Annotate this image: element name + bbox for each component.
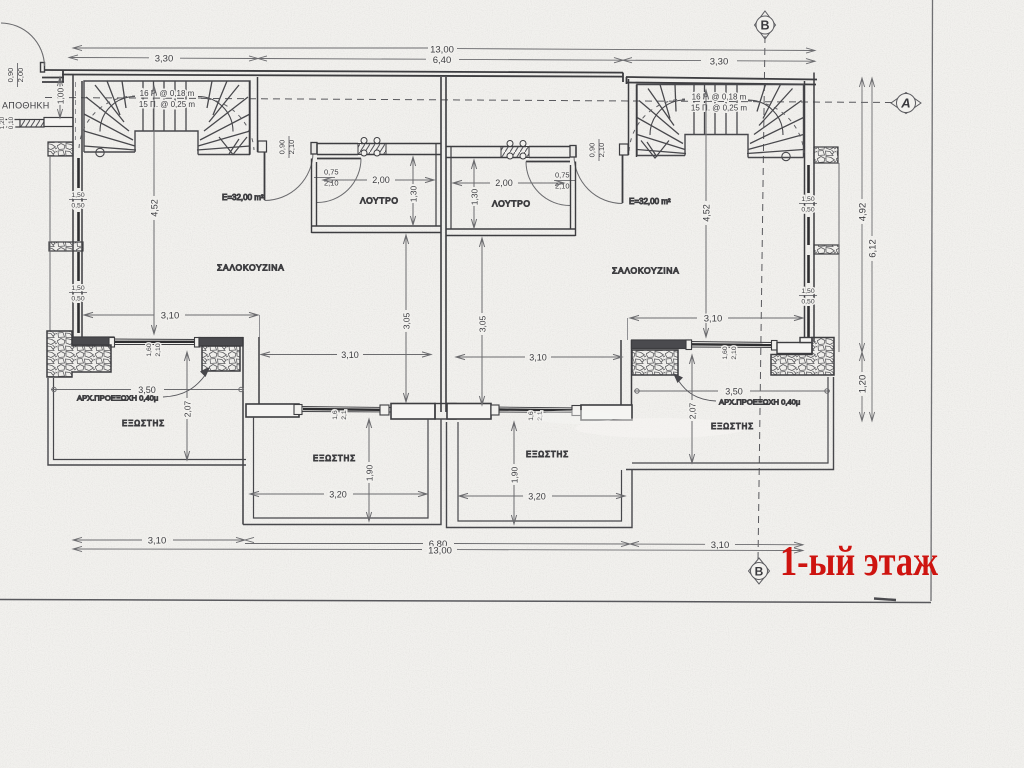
svg-text:ΕΞΩΣΤΗΣ: ΕΞΩΣΤΗΣ — [711, 422, 754, 431]
svg-text:2,10: 2,10 — [287, 140, 296, 155]
svg-text:2,10: 2,10 — [597, 143, 606, 158]
svg-text:1,50: 1,50 — [71, 192, 84, 199]
svg-text:2,10: 2,10 — [155, 343, 162, 356]
svg-text:A: A — [900, 96, 910, 111]
svg-text:ΕΞΩΣΤΗΣ: ΕΞΩΣΤΗΣ — [313, 454, 356, 463]
svg-text:0,90: 0,90 — [6, 68, 15, 83]
svg-text:0,50: 0,50 — [71, 296, 84, 303]
svg-text:1,6: 1,6 — [332, 410, 339, 420]
svg-text:E=32,00 m²: E=32,00 m² — [629, 197, 671, 206]
svg-text:2,00: 2,00 — [495, 178, 513, 188]
svg-text:1,50: 1,50 — [71, 285, 84, 292]
svg-text:1,90: 1,90 — [365, 464, 375, 481]
svg-text:2,07: 2,07 — [183, 400, 193, 417]
svg-text:1,50: 1,50 — [801, 196, 814, 203]
svg-text:1,60: 1,60 — [146, 343, 153, 356]
svg-text:3,10: 3,10 — [148, 536, 167, 547]
svg-text:6,12: 6,12 — [868, 239, 879, 258]
svg-text:0,50: 0,50 — [801, 207, 814, 214]
svg-text:ΑΠΟΘΗΚΗ: ΑΠΟΘΗΚΗ — [2, 101, 50, 111]
svg-text:2,00: 2,00 — [372, 175, 390, 185]
svg-text:1,50: 1,50 — [801, 288, 814, 295]
svg-text:16 Ρ. @ 0,18 m: 16 Ρ. @ 0,18 m — [140, 89, 195, 98]
svg-text:0,90: 0,90 — [278, 140, 287, 155]
svg-text:13,00: 13,00 — [428, 546, 452, 557]
svg-text:6,40: 6,40 — [433, 55, 452, 66]
svg-text:0,90: 0,90 — [588, 143, 597, 158]
svg-text:2,1: 2,1 — [341, 410, 348, 420]
svg-text:ΣΑΛΟΚΟΥΖΙΝΑ: ΣΑΛΟΚΟΥΖΙΝΑ — [612, 266, 680, 276]
svg-text:B: B — [760, 19, 769, 33]
svg-text:4,92: 4,92 — [858, 203, 869, 222]
svg-text:2,10: 2,10 — [731, 346, 738, 359]
svg-text:0,10: 0,10 — [8, 116, 15, 129]
svg-text:ΛΟΥΤΡΟ: ΛΟΥΤΡΟ — [492, 199, 531, 209]
svg-text:3,05: 3,05 — [478, 315, 488, 332]
svg-text:ΣΑΛΟΚΟΥΖΙΝΑ: ΣΑΛΟΚΟΥΖΙΝΑ — [217, 263, 285, 273]
svg-text:ΕΞΩΣΤΗΣ: ΕΞΩΣΤΗΣ — [526, 450, 569, 459]
svg-text:0,50: 0,50 — [71, 203, 84, 210]
svg-text:1,6: 1,6 — [528, 411, 535, 421]
svg-text:3,50: 3,50 — [725, 387, 743, 397]
svg-text:B: B — [755, 565, 764, 579]
svg-text:3,10: 3,10 — [341, 350, 359, 360]
svg-text:1,20: 1,20 — [0, 116, 6, 129]
svg-text:13,00: 13,00 — [430, 45, 454, 56]
svg-text:3,10: 3,10 — [704, 314, 723, 325]
svg-text:1,30: 1,30 — [409, 185, 419, 202]
svg-text:E=32,00 m²: E=32,00 m² — [222, 193, 264, 202]
svg-text:3,30: 3,30 — [155, 54, 174, 65]
svg-text:1,20: 1,20 — [858, 375, 869, 394]
svg-text:16 Ρ. @ 0,18 m: 16 Ρ. @ 0,18 m — [692, 93, 747, 102]
svg-text:3,10: 3,10 — [529, 353, 547, 363]
svg-text:2,07: 2,07 — [688, 402, 698, 419]
svg-text:4,52: 4,52 — [702, 204, 712, 222]
svg-text:1,90: 1,90 — [510, 466, 520, 483]
svg-text:3,10: 3,10 — [711, 540, 730, 551]
svg-text:ΑΡΧ.ΠΡΟΕΞΩΧΗ 0,40μ: ΑΡΧ.ΠΡΟΕΞΩΧΗ 0,40μ — [77, 394, 158, 403]
svg-text:15 Π. @ 0,25 m: 15 Π. @ 0,25 m — [691, 104, 747, 113]
svg-text:0,50: 0,50 — [801, 299, 814, 306]
svg-text:3,20: 3,20 — [528, 492, 546, 502]
svg-text:ΛΟΥΤΡΟ: ΛΟΥΤΡΟ — [360, 196, 399, 206]
svg-text:15 Π. @ 0,25 m: 15 Π. @ 0,25 m — [139, 100, 195, 109]
svg-text:1,00: 1,00 — [56, 87, 66, 104]
svg-text:3,05: 3,05 — [402, 312, 412, 329]
svg-text:3,10: 3,10 — [161, 311, 180, 322]
svg-text:1,60: 1,60 — [722, 346, 729, 359]
svg-text:3,30: 3,30 — [710, 57, 729, 68]
svg-text:4,52: 4,52 — [150, 199, 160, 217]
svg-text:3,20: 3,20 — [329, 490, 347, 500]
svg-text:1-ый этаж: 1-ый этаж — [780, 539, 938, 585]
svg-text:ΑΡΧ.ΠΡΟΕΞΩΧΗ 0,40μ: ΑΡΧ.ΠΡΟΕΞΩΧΗ 0,40μ — [719, 398, 800, 407]
svg-text:1,30: 1,30 — [470, 188, 480, 205]
svg-text:ΕΞΩΣΤΗΣ: ΕΞΩΣΤΗΣ — [122, 419, 165, 428]
svg-text:0,75: 0,75 — [555, 171, 570, 180]
svg-text:0,75: 0,75 — [324, 168, 339, 177]
